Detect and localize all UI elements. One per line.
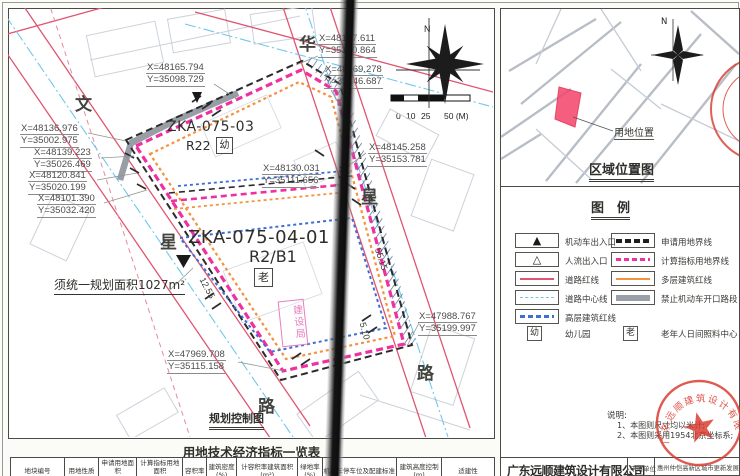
road-redline-sample (520, 278, 554, 280)
legend-label: 计算指标用地界线 (661, 255, 729, 267)
legend-title: 图 例 (591, 197, 630, 220)
coord-callout: X=48136.976Y=35002.975 (20, 123, 79, 148)
road-centerline-sample (520, 297, 554, 298)
table-header-cell: 绿地率(%) (298, 458, 323, 476)
legend-label: 禁止机动车开口路段 (661, 293, 738, 305)
legend-label: 老年人日间照料中心 (661, 328, 738, 340)
location-map-panel: N 用地位置 区域位置图 (500, 8, 740, 188)
table-header-cell: 建筑高度控制(m) (397, 458, 442, 476)
table-header-cell: 计容积率建筑面积(m²) (237, 458, 298, 476)
street-char: 星 (160, 228, 177, 253)
table-header-cell: 容积率 (183, 458, 207, 476)
legend-label: 多层建筑红线 (661, 274, 712, 286)
title-block-divider (627, 458, 628, 476)
no-opening-sample (616, 295, 650, 301)
triangle-hollow-icon: △ (533, 253, 541, 266)
partial-stamp-arc (711, 57, 739, 161)
triangle-filled-icon: ▲ (533, 234, 541, 247)
coord-callout: X=48101.390Y=35032.420 (37, 193, 96, 218)
legend-label: 高层建筑红线 (565, 312, 616, 324)
scale-bar (391, 95, 470, 101)
street-char: 路 (417, 359, 434, 384)
coord-callout: X=47988.767Y=35199.997 (418, 311, 477, 336)
applicant-label: 申请单位 (630, 463, 656, 473)
street-char: 星 (361, 183, 378, 208)
legend-label: 申请用地界线 (661, 236, 712, 248)
coord-callout: X=48130.031Y=35111.656 (262, 163, 321, 188)
table-header-cell: 计算指标用地面积(m²) (137, 458, 183, 476)
table-header-cell: 地块编号 (11, 458, 65, 476)
legend-symbol-eldercare: 老 (623, 326, 638, 341)
drawing-caption: 规划控制图 (209, 410, 264, 430)
kindergarten-box: 幼 (216, 137, 233, 154)
table-header-cell: 建筑密度(%) (207, 458, 237, 476)
coord-callout: X=48145.258Y=35153.781 (368, 142, 427, 167)
table-header-cell: 用地性质 (65, 458, 99, 476)
design-company-name: 广东远顺建筑设计有限公司 (507, 462, 625, 476)
index-boundary-sample (616, 258, 650, 262)
unified-planning-note: 须统一规划面积1027m² (54, 276, 185, 295)
legend-symbol-kindergarten: 幼 (527, 326, 542, 341)
legend-label: 机动车出入口 (565, 236, 616, 248)
legend-symbol-no-opening (611, 290, 655, 305)
legend-symbol-index-boundary (611, 252, 655, 267)
background-buildings (30, 8, 475, 437)
legend-label: 道路中心线 (565, 293, 608, 305)
legend-symbol-vehicle-entrance: ▲ (515, 233, 559, 248)
table-header-cell: 适建性 (442, 458, 494, 476)
legend-symbol-road-centerline (515, 290, 559, 305)
legend-label: 人流出入口 (565, 255, 608, 267)
planning-drawing-sheet: 文 星 路 华 星 路 X=48165.794Y=35098.729 X=481… (0, 0, 740, 476)
parcel-divider (169, 176, 352, 209)
highrise-redline-sample (520, 315, 554, 318)
eldercare-box: 老 (254, 268, 273, 287)
table-header-cell: 申请用地面积(m²) (99, 458, 137, 476)
legend-symbol-multistorey-redline (611, 271, 655, 286)
parcel-code-south: ZKA-075-04-01 (188, 227, 330, 248)
seal-star-icon (682, 409, 718, 444)
legend-symbol-application-boundary (611, 233, 655, 248)
legend-symbol-road-redline (515, 271, 559, 286)
street-char: 华 (299, 30, 316, 55)
parcel-use-north: R22 (186, 138, 211, 153)
parcel-code-north: ZKA-075-03 (167, 119, 254, 135)
legend-symbol-highrise-redline (515, 309, 559, 324)
location-map-north-arrow (651, 19, 704, 85)
coord-callout: X=48139.223Y=35026.469 (33, 147, 92, 172)
location-north-label: N (661, 17, 667, 27)
bureau-stamp: 建设局 (278, 299, 309, 347)
multistorey-redline-sample (616, 278, 650, 280)
parcel-use-south: R2/B1 (249, 247, 297, 266)
legend-label: 道路红线 (565, 274, 599, 286)
legend-label: 幼儿园 (565, 328, 591, 340)
site-location-label: 用地位置 (614, 124, 654, 140)
application-boundary-sample (616, 239, 650, 243)
street-char: 文 (75, 90, 92, 115)
coord-callout: X=47969.708Y=35115.158 (167, 349, 226, 374)
title-block-divider (654, 458, 655, 476)
coord-callout: X=48120.841Y=35020.199 (28, 170, 87, 195)
site-parcel-highlight (555, 87, 581, 127)
legend-symbol-pedestrian-entrance: △ (515, 252, 559, 267)
indicator-table: 地块编号 用地性质 申请用地面积(m²) 计算指标用地面积(m²) 容积率 建筑… (10, 457, 495, 476)
location-map-title: 区域位置图 (589, 159, 654, 182)
coord-callout: X=48165.794Y=35098.729 (146, 62, 205, 87)
